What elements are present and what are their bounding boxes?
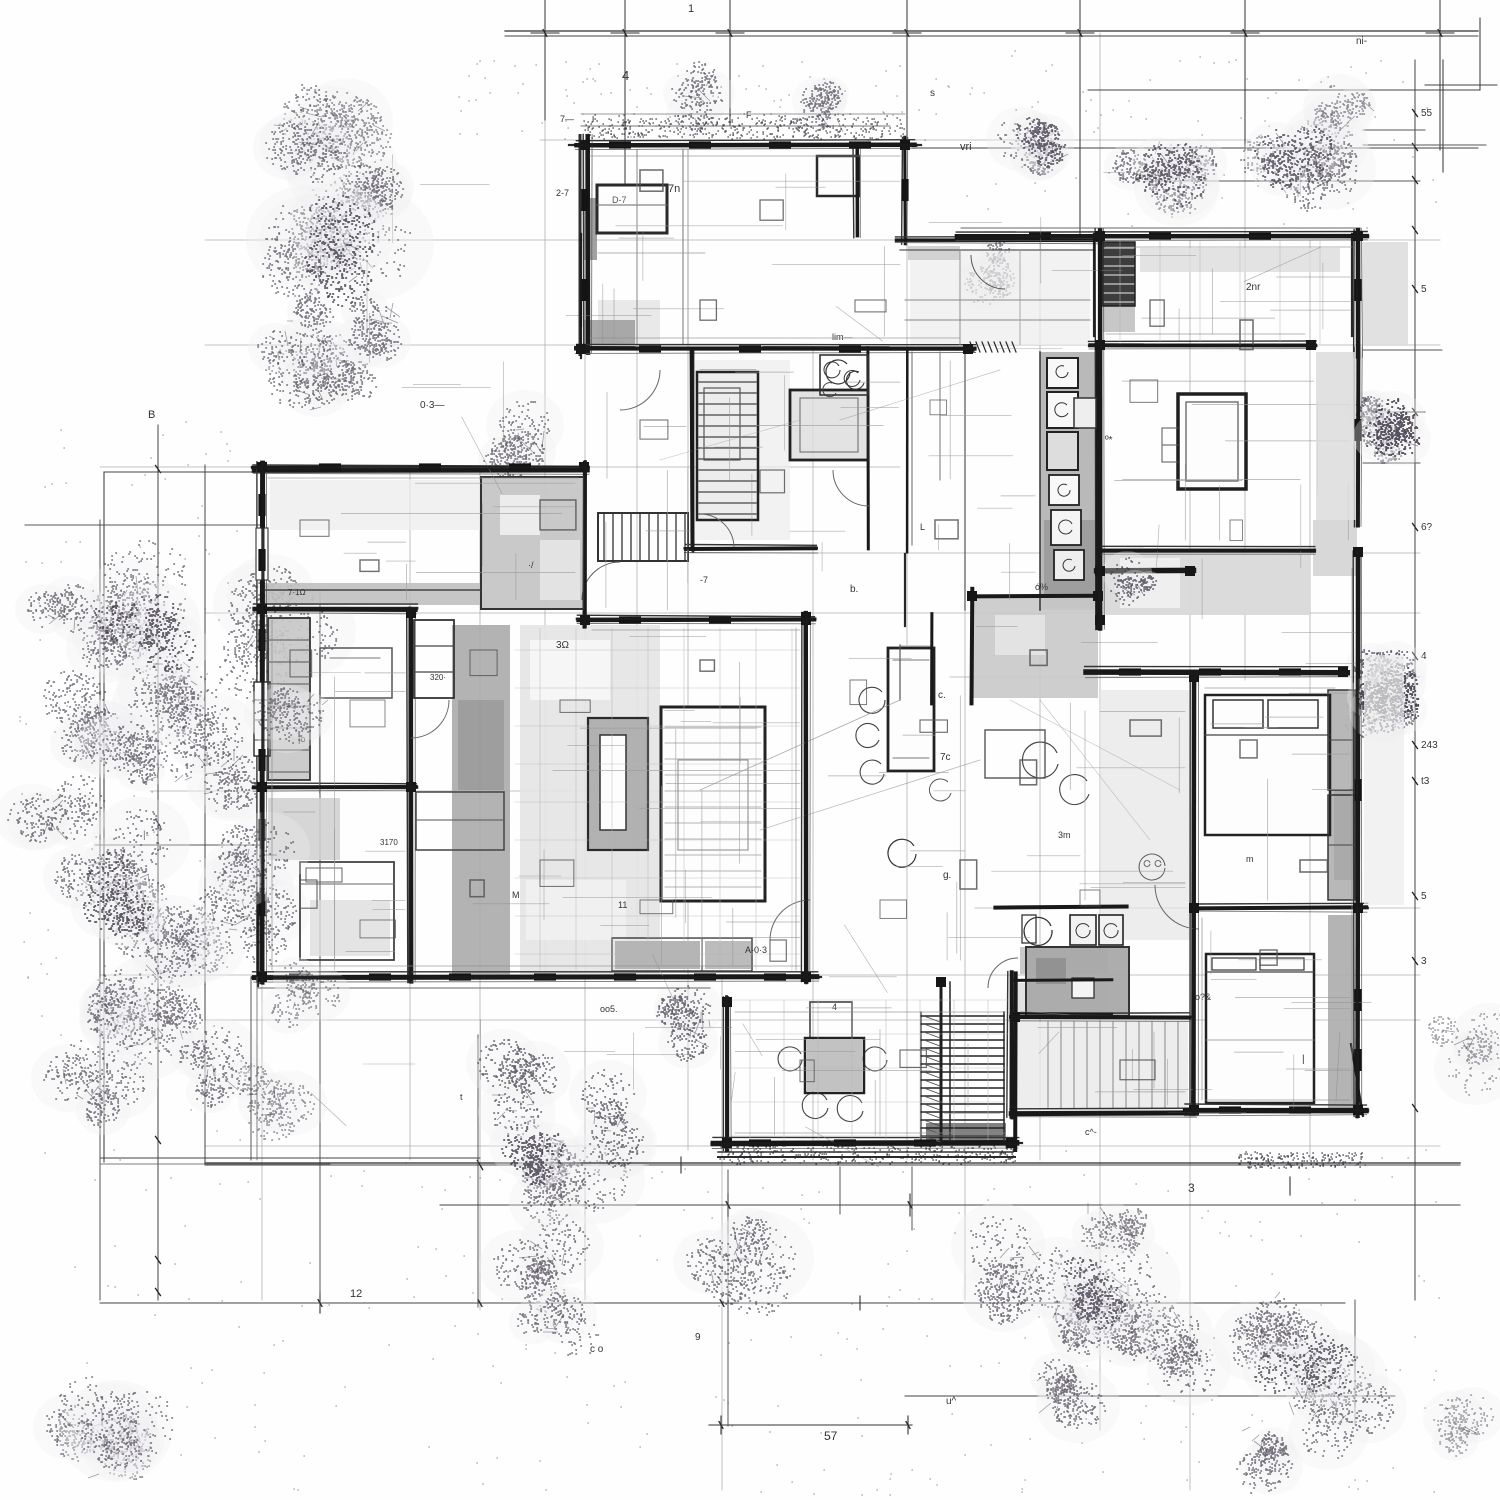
svg-text:3Ω: 3Ω <box>556 640 570 651</box>
svg-text:11: 11 <box>618 900 627 910</box>
svg-text:3: 3 <box>1421 956 1427 967</box>
svg-text:9: 9 <box>695 1332 701 1343</box>
svg-text:c^-: c^- <box>1085 1127 1097 1137</box>
svg-text:m: m <box>1246 854 1254 864</box>
svg-text:12: 12 <box>350 1288 362 1300</box>
svg-text:5: 5 <box>1421 284 1427 295</box>
svg-text:D-7: D-7 <box>612 195 627 205</box>
svg-text:o?&: o?& <box>1195 992 1211 1002</box>
svg-text:7c: 7c <box>940 752 951 763</box>
svg-text:-7: -7 <box>700 575 708 585</box>
svg-text:2-7: 2-7 <box>556 188 569 198</box>
svg-text:F: F <box>746 110 752 120</box>
svg-text:0·3—: 0·3— <box>420 400 444 411</box>
svg-text:1: 1 <box>688 3 694 15</box>
svg-text:M: M <box>512 890 520 900</box>
svg-text:4: 4 <box>832 1002 837 1012</box>
svg-text:4: 4 <box>622 68 629 83</box>
svg-text:243: 243 <box>1421 740 1438 751</box>
svg-text:vri: vri <box>960 141 972 153</box>
svg-text:55: 55 <box>1421 108 1433 119</box>
svg-text:t3: t3 <box>1421 776 1430 787</box>
svg-text:2nr: 2nr <box>1246 282 1261 293</box>
svg-text:6?: 6? <box>1421 522 1433 533</box>
svg-text:5: 5 <box>1421 891 1427 902</box>
svg-text:7—: 7— <box>560 114 574 124</box>
svg-text:57: 57 <box>824 1429 838 1443</box>
svg-text:ó%: ó% <box>1035 582 1048 592</box>
svg-text:g.: g. <box>943 870 951 881</box>
svg-text:s: s <box>930 88 935 99</box>
svg-text:|: | <box>1302 1054 1305 1065</box>
svg-text:·/: ·/ <box>528 560 534 570</box>
svg-text:ni-: ni- <box>1356 36 1367 47</box>
svg-text:u^: u^ <box>946 1396 957 1407</box>
svg-text:º*: º* <box>1105 435 1113 446</box>
svg-text:oo5.: oo5. <box>600 1004 618 1014</box>
svg-text:b.: b. <box>850 584 858 595</box>
svg-text:3m: 3m <box>1058 830 1071 840</box>
svg-text:B: B <box>148 409 155 421</box>
svg-text:L: L <box>920 522 925 532</box>
svg-text:3170: 3170 <box>380 838 398 847</box>
svg-text:c o: c o <box>590 1344 604 1355</box>
svg-text:7·1Ω: 7·1Ω <box>288 588 306 597</box>
svg-text:3: 3 <box>1188 1181 1195 1195</box>
svg-text:320·: 320· <box>430 673 446 682</box>
svg-text:c.: c. <box>938 690 946 701</box>
svg-text:lim—: lim— <box>832 332 853 342</box>
svg-text:7n: 7n <box>668 183 680 195</box>
